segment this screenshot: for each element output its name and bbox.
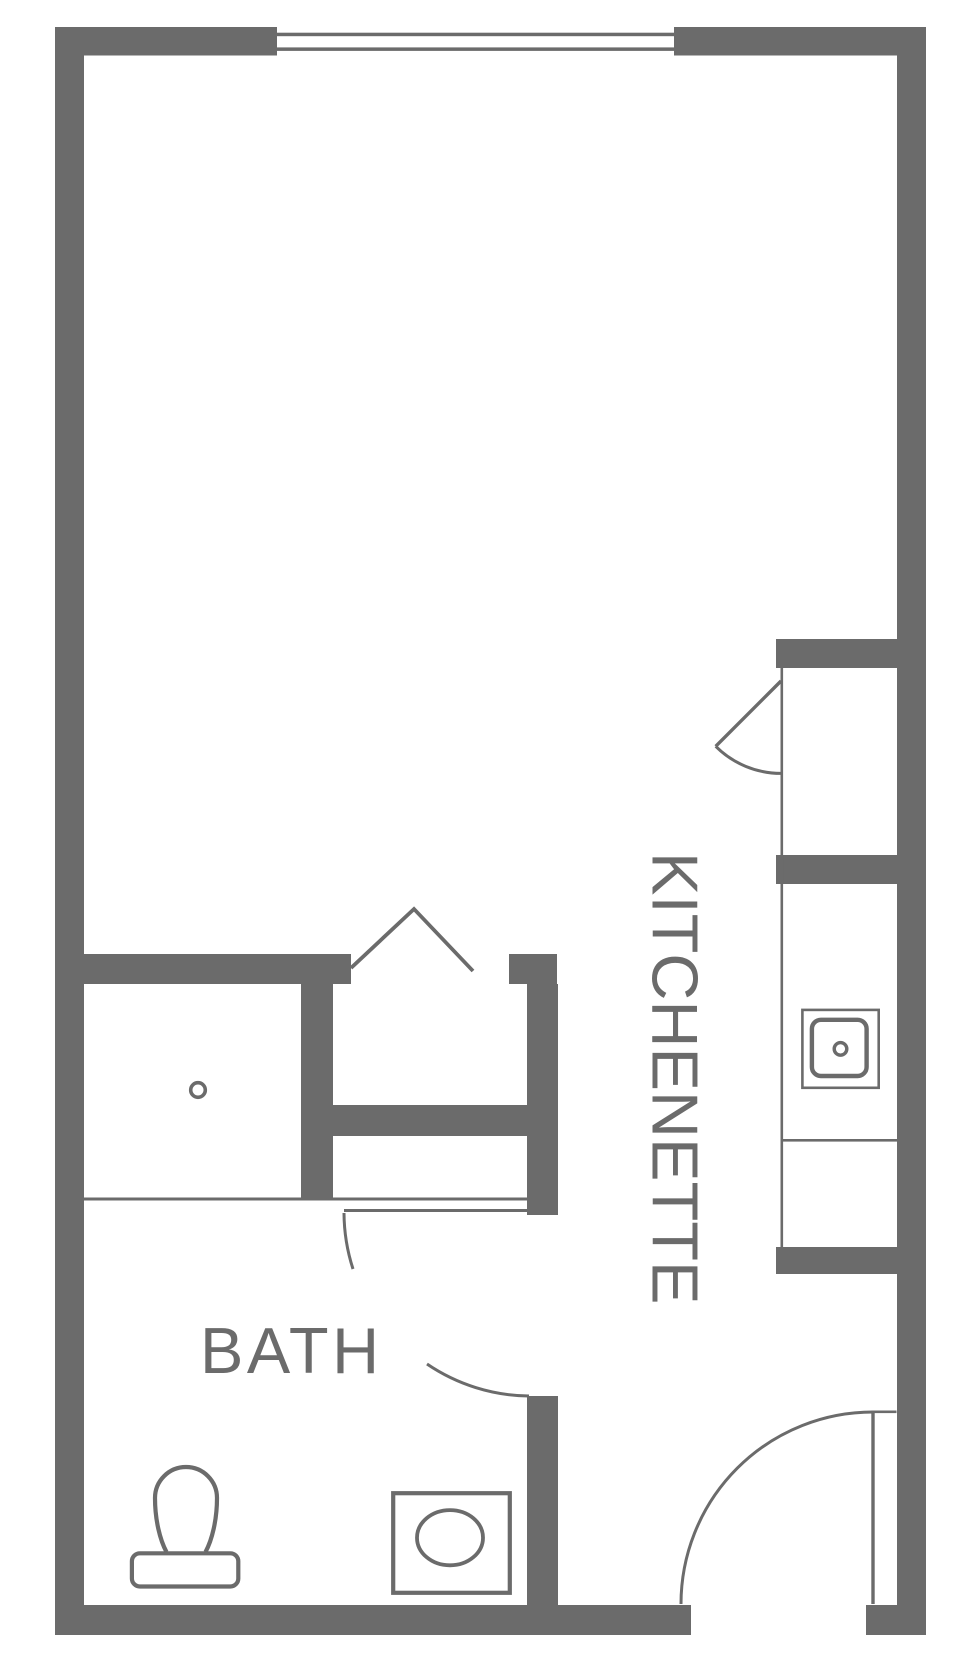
svg-text:BATH: BATH	[200, 1314, 383, 1387]
svg-text:KITCHENETTE: KITCHENETTE	[639, 852, 712, 1305]
